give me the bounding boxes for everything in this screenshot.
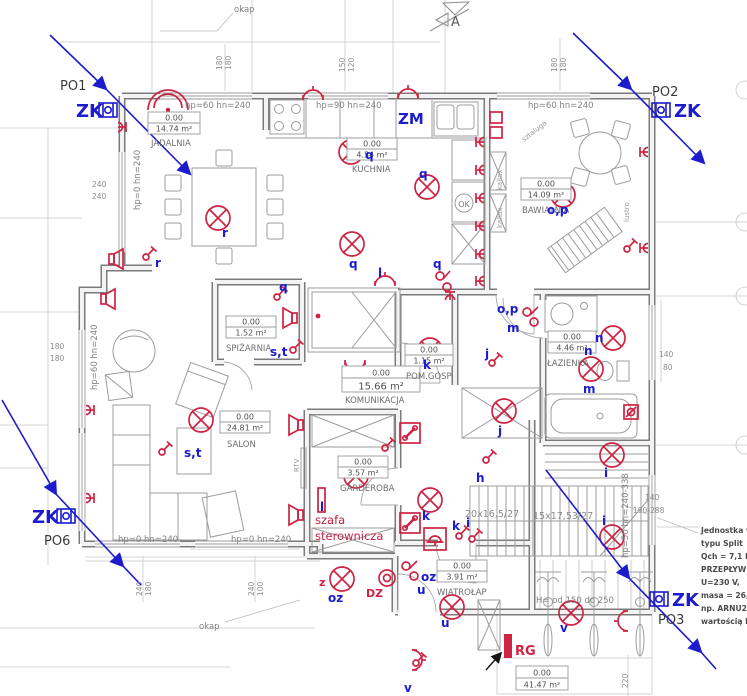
mirror-label: lustro	[623, 202, 631, 222]
unit-note-line: wartością ESP	[701, 617, 747, 626]
circuit-label: m	[583, 382, 596, 396]
circuit-label: u	[441, 616, 450, 630]
circuit-label: i	[604, 466, 608, 480]
floor-plan-page: 0.00 14.74 m² JADALNIA 0.00 4.54 m² KUCH…	[0, 0, 747, 696]
circuit-label: v	[404, 681, 412, 695]
switch-icon	[159, 442, 173, 456]
room-level: 0.00	[453, 562, 471, 571]
room-name: KOMUNIKACJA	[345, 396, 405, 406]
room-label-spizarnia: 0.00 1.52 m² SPIŻARNIA	[226, 316, 276, 354]
room-area: 14.74 m²	[156, 125, 192, 134]
room-name: SALON	[227, 440, 256, 450]
dimension: 240	[92, 180, 107, 189]
round-pouf	[113, 330, 155, 372]
room-area: 4.46 m²	[556, 344, 587, 353]
okap-label: okap	[199, 622, 220, 632]
socket-icon	[476, 276, 484, 286]
room-label-salon: 0.00 24.81 m² SALON	[220, 411, 270, 450]
circuit-label: j	[497, 424, 502, 438]
doorbell-icon	[424, 528, 446, 550]
circuit-label: j	[484, 347, 489, 361]
circuit-label: q	[349, 257, 358, 271]
room-area: 3.57 m²	[347, 469, 378, 478]
window	[497, 91, 590, 101]
ceiling-lamp-icon	[330, 567, 354, 591]
dimension: 240	[135, 581, 144, 596]
window	[77, 330, 87, 428]
socket-icon	[476, 193, 484, 203]
socket-icon	[476, 165, 484, 175]
circuit-label: n	[584, 344, 593, 358]
circuit-label: q	[365, 148, 374, 162]
room-label-garderoba: 0.00 3.57 m² GARDEROBA	[338, 456, 395, 494]
phone-outlet-icon	[400, 423, 420, 443]
window	[647, 305, 657, 380]
section-mark	[430, 2, 469, 31]
circuit-label: h	[476, 471, 485, 485]
room-label-wiatrolap: 0.00 3.91 m² WIATROŁAP	[437, 560, 487, 598]
circuit-label: s,t	[184, 446, 202, 460]
circuit-label: l	[378, 266, 382, 280]
room-area: 1.52 m²	[235, 329, 266, 338]
control-cabinet-label: sterownicza	[315, 529, 383, 543]
wall-height-label: hp=60 hn=240	[90, 324, 100, 390]
circuit-label: o,p	[547, 203, 569, 217]
po3-label: PO3	[658, 613, 684, 628]
socket-box-icon	[490, 127, 502, 138]
switch-group-icon	[402, 561, 418, 580]
room-area: 14.09 m²	[528, 191, 564, 200]
speaker-icon	[283, 308, 297, 328]
circuit-label: s,t	[270, 345, 288, 359]
circuit-oz-label: oz	[328, 591, 343, 605]
down-conductor-line	[701, 652, 716, 669]
dimension: 100	[256, 581, 265, 596]
armchair	[176, 362, 229, 417]
circuit-label: q	[433, 257, 442, 271]
unit-note-line: masa = 26,5	[701, 591, 747, 600]
rtv-label: RTV	[293, 458, 301, 472]
speaker-icon	[289, 415, 303, 435]
circuit-label: u	[417, 583, 426, 597]
room-name: SPIŻARNIA	[226, 343, 271, 354]
bathroom-counter	[545, 296, 597, 332]
circuit-label: m	[507, 321, 520, 335]
circuit-label: k	[422, 509, 431, 523]
okap-label: okap	[234, 5, 255, 15]
socket-icon	[640, 147, 648, 157]
stair-run-label: 15x17,53/27	[533, 511, 593, 522]
dimension: 180	[224, 55, 233, 70]
room-area: 15.66 m²	[358, 382, 404, 393]
dimension: 80	[663, 363, 673, 372]
unit-note-line: Jednostka we	[700, 526, 747, 535]
dimension: 180	[559, 57, 568, 72]
room-level: 0.00	[165, 114, 183, 123]
shelf-label: kallax	[496, 169, 504, 190]
dimension: 140	[659, 350, 674, 359]
dimension: 180	[50, 342, 65, 351]
circuit-label: k	[423, 358, 432, 372]
zk-label: ZK	[672, 590, 700, 611]
control-cabinet-label: szafa	[315, 513, 345, 527]
wall-height-label: hp=90 hn=240	[316, 101, 382, 111]
wall-height-label: hp=50 hn=240-338	[621, 473, 631, 558]
room-level: 0.00	[242, 318, 260, 327]
socket-icon	[640, 243, 648, 253]
dimension: 240	[92, 192, 107, 201]
room-level: 0.00	[354, 458, 372, 467]
ceiling-lamp-icon	[492, 399, 516, 423]
po6-label: PO6	[44, 534, 70, 549]
socket-icon	[86, 405, 94, 415]
speaker-icon	[289, 505, 303, 525]
circuit-label: n	[595, 331, 604, 345]
stair-run-label: 20x16,5/27	[465, 509, 519, 520]
switch-group-icon	[436, 271, 451, 291]
switch-icon	[382, 438, 396, 452]
room-label-jadalnia: 0.00 14.74 m² JADALNIA	[148, 112, 200, 149]
circuit-oz-label: oz	[421, 570, 436, 584]
zk-label: ZK	[76, 101, 104, 122]
po2-label: PO2	[652, 85, 678, 100]
room-level: 0.00	[563, 333, 581, 342]
zm-label: ZM	[398, 110, 424, 128]
round-table	[570, 118, 631, 187]
rg-board	[486, 634, 512, 670]
ceiling-lamp-icon	[340, 232, 364, 256]
dz-label: DZ	[366, 587, 383, 600]
wall-height-label: hp=60 hn=240	[528, 101, 594, 111]
easel-label: sztaluga	[520, 119, 548, 143]
dimension: 240	[247, 581, 256, 596]
wall-height-label: hp=0 hn=240	[118, 535, 178, 545]
section-letter: A	[451, 15, 460, 30]
room-level: 0.00	[372, 369, 390, 378]
window	[77, 433, 87, 531]
dimension: 220	[621, 673, 630, 688]
unit-note-line: Qch = 7,1 kW	[701, 552, 747, 561]
ceiling-lamp-icon	[600, 443, 624, 467]
window	[117, 152, 127, 252]
rg-arrow	[486, 653, 501, 670]
circuit-label: i	[466, 516, 470, 530]
corner-sofa	[113, 405, 207, 540]
shelf-label: kallax	[496, 207, 504, 228]
circuit-label: r	[222, 226, 228, 240]
circuit-label: r	[155, 256, 161, 270]
room-label-terrace: 0.00 41.47 m²	[516, 666, 568, 690]
ceiling-lamp-icon	[601, 326, 625, 350]
rg-label: RG	[515, 644, 536, 659]
wall-height-label: hp=0 hn=240	[231, 535, 291, 545]
socket-box-icon	[490, 112, 502, 123]
circuit-label: q	[419, 167, 428, 181]
room-area: 3.91 m²	[446, 573, 477, 582]
unit-note-line: U=230 V,	[701, 578, 740, 587]
room-level: 0.00	[420, 346, 438, 355]
dimension: 140	[645, 493, 660, 502]
circuit-label: l	[320, 500, 324, 514]
armchair	[202, 491, 244, 537]
room-name: GARDEROBA	[340, 484, 395, 494]
room-name: WIATROŁAP	[437, 588, 487, 598]
room-area: 24.81 m²	[227, 424, 263, 433]
kitchen-island	[308, 288, 400, 352]
floor-plan-drawing: 0.00 14.74 m² JADALNIA 0.00 4.54 m² KUCH…	[0, 0, 747, 696]
dimension: 180	[550, 57, 559, 72]
po1-label: PO1	[60, 79, 86, 94]
pouf	[105, 371, 132, 400]
zk-label: ZK	[32, 507, 60, 528]
dimension: 150	[338, 57, 347, 72]
room-name: ŁAZIENKA	[546, 359, 589, 369]
switch-icon	[489, 353, 503, 367]
bike-height-note: H= od 150 do 250	[536, 596, 614, 606]
unit-note-line: PRZEPŁYW N	[701, 565, 747, 574]
dimension: 190-288	[633, 506, 665, 515]
switch-group-icon	[523, 307, 538, 326]
dimension: 180	[50, 354, 65, 363]
wall-height-label: hp=0 hn=240	[133, 150, 143, 210]
switch-icon	[624, 239, 638, 253]
down-conductor-arrow	[573, 33, 631, 89]
switch-icon	[483, 450, 497, 464]
circuit-label: o,p	[497, 302, 519, 316]
zk-label: ZK	[674, 101, 702, 122]
circuit-label: i	[602, 514, 606, 528]
socket-icon	[86, 493, 94, 503]
room-area: 41.47 m²	[524, 681, 560, 690]
room-level: 0.00	[533, 669, 551, 678]
room-level: 0.00	[537, 180, 555, 189]
dimension: 180	[215, 55, 224, 70]
circuit-label: k	[452, 519, 461, 533]
circuit-label: q	[279, 280, 288, 294]
room-level: 0.00	[236, 413, 254, 422]
dimension: 120	[347, 57, 356, 72]
room-name: KUCHNIA	[352, 165, 391, 175]
room-name: JADALNIA	[150, 139, 191, 149]
unit-note-line: typu Split	[701, 539, 743, 548]
wall-height-label: hp=60 hn=240	[185, 101, 251, 111]
socket-icon	[476, 249, 484, 259]
circuit-label: v	[560, 621, 568, 635]
room-name: POM.GOSP	[406, 372, 452, 382]
dimension: 180	[144, 581, 153, 596]
phone-outlet-icon	[400, 513, 420, 533]
oven-label: OK	[458, 200, 470, 209]
piano	[548, 207, 622, 272]
circuit-z-label: z	[319, 576, 325, 589]
unit-note-line: np. ARNU24G	[701, 604, 747, 613]
entrance-door-gap	[398, 607, 440, 617]
